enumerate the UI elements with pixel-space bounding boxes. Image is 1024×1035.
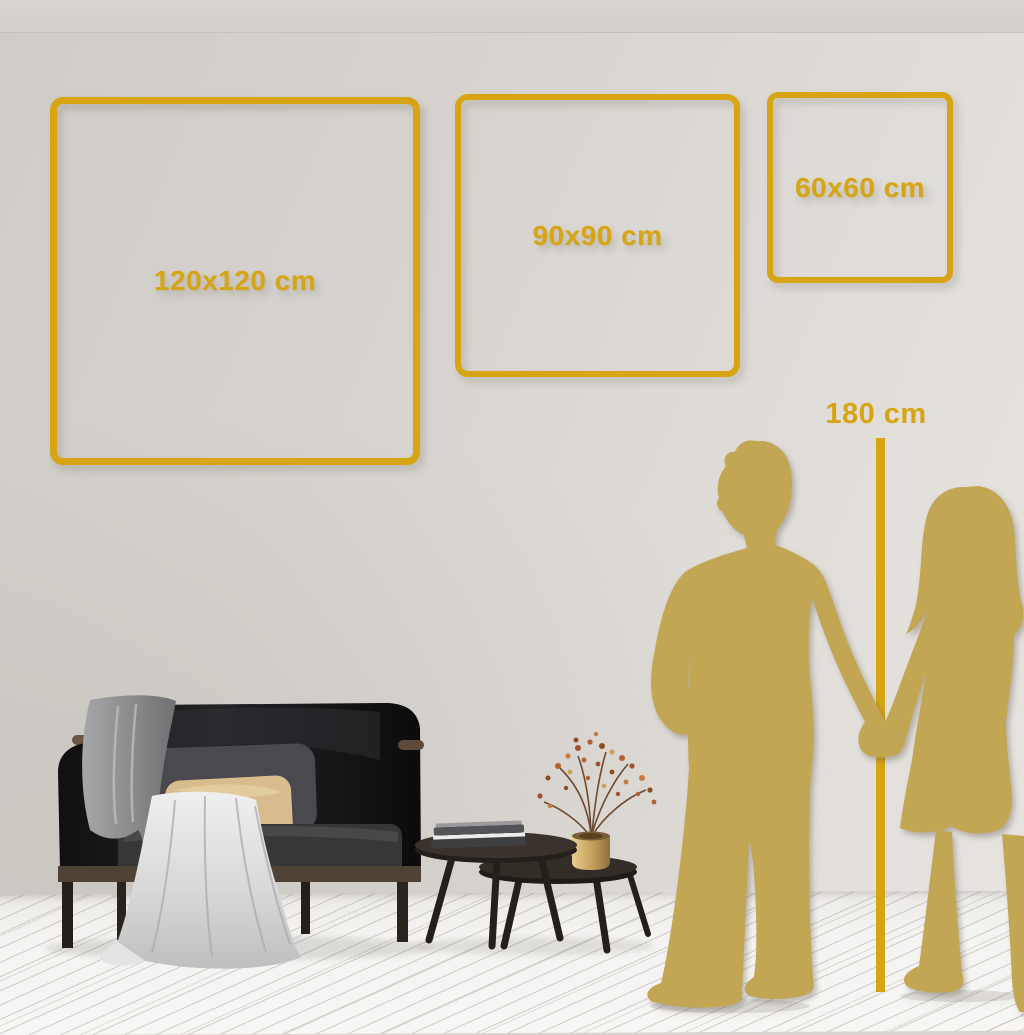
woman-silhouette <box>879 486 1023 833</box>
woman-leg-right <box>1002 834 1024 1012</box>
sofa <box>45 695 435 968</box>
man-silhouette <box>647 441 888 1008</box>
coffee-table-small <box>479 855 648 950</box>
woman-leg <box>904 830 963 993</box>
armrest-wood-knob <box>398 740 424 750</box>
book-stack <box>431 820 526 848</box>
couple-silhouettes <box>647 441 1024 1013</box>
living-room-scene <box>0 0 1024 1024</box>
coffee-tables <box>415 732 656 955</box>
vase <box>572 836 610 870</box>
